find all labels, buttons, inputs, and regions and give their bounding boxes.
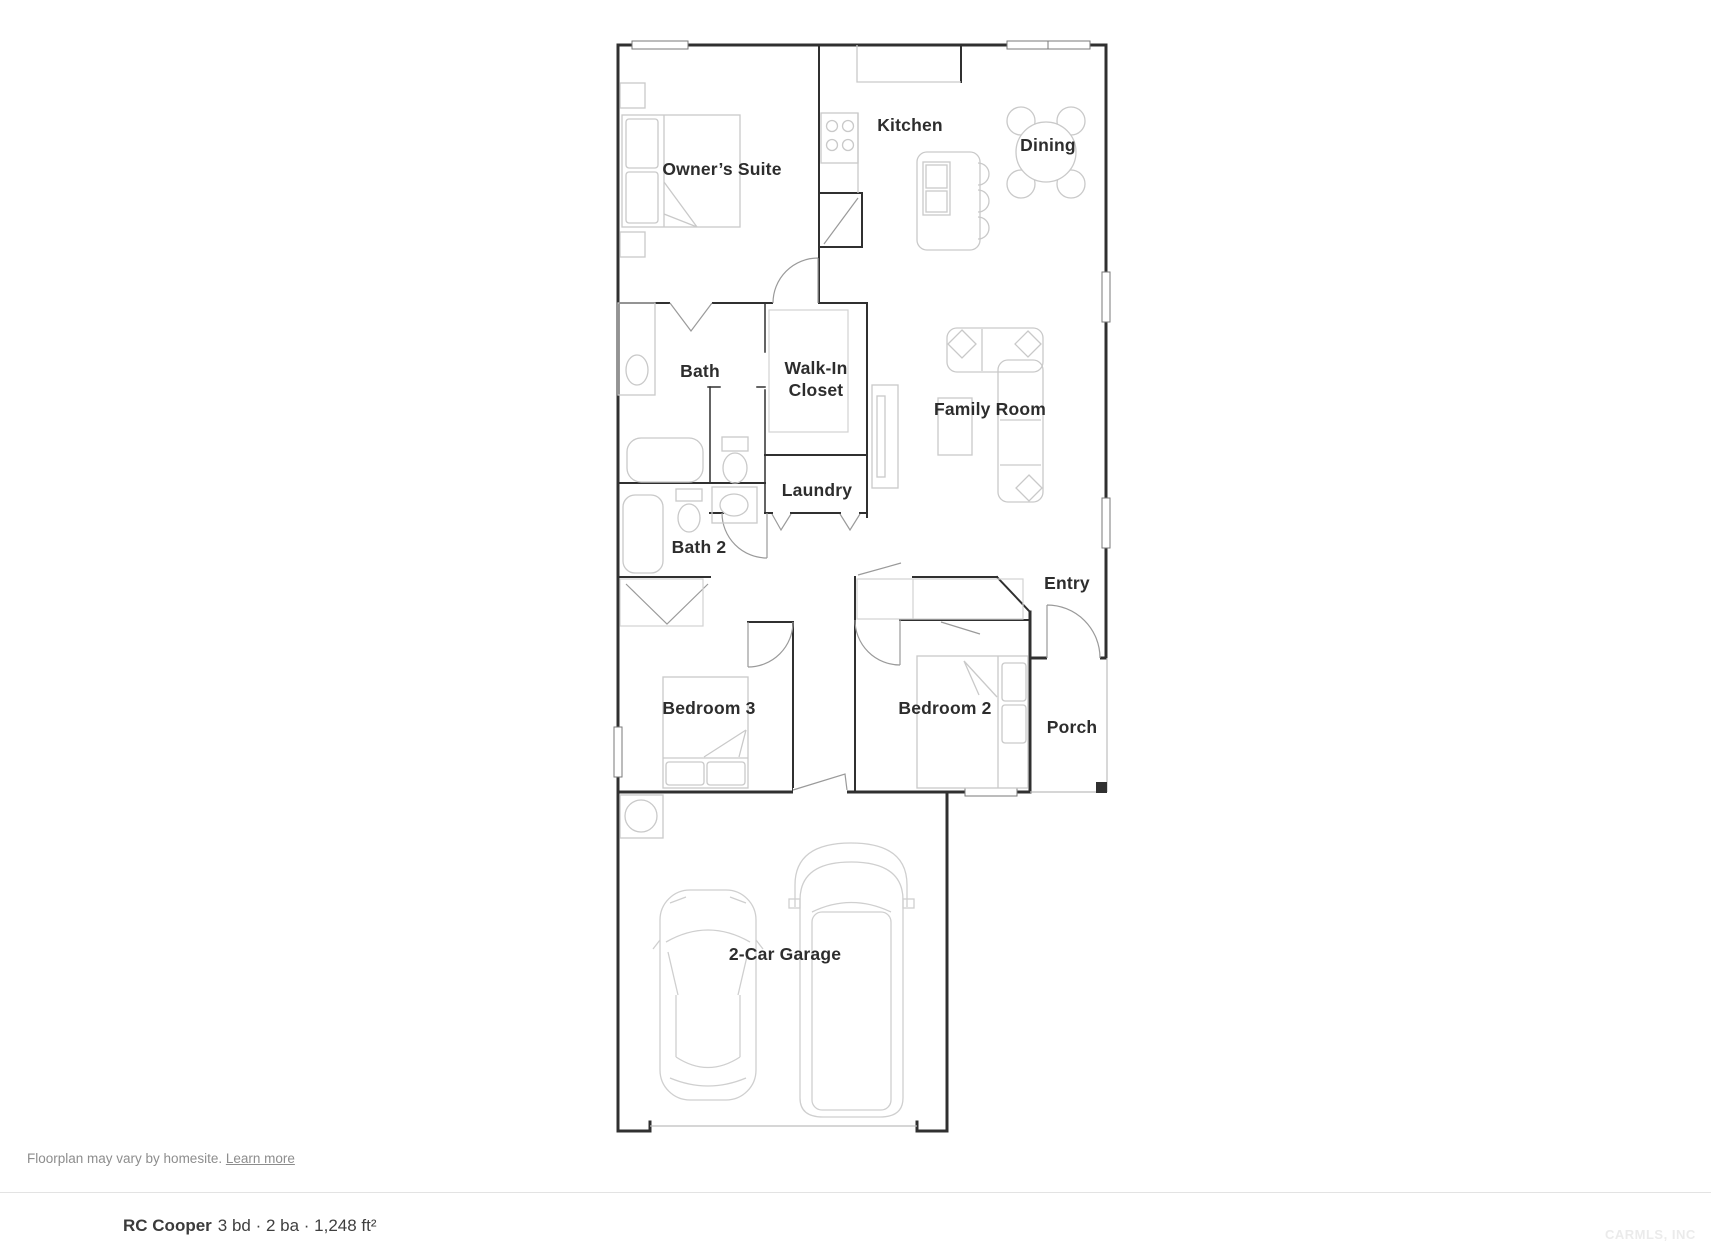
wall-openings bbox=[670, 300, 1100, 796]
room-label-kitchen: Kitchen bbox=[877, 115, 943, 137]
mls-watermark: CARMLS, INC bbox=[1605, 1227, 1696, 1242]
floorplan-page: Owner’s Suite Kitchen Dining Bath Walk-I… bbox=[0, 0, 1711, 1248]
floorplan-disclaimer: Floorplan may vary by homesite. Learn mo… bbox=[27, 1151, 295, 1166]
room-label-owners-suite: Owner’s Suite bbox=[662, 159, 781, 181]
bath2-fixtures-icon bbox=[623, 487, 757, 573]
room-label-bath-2: Bath 2 bbox=[672, 537, 727, 559]
room-label-porch: Porch bbox=[1047, 717, 1098, 739]
plan-name: RC Cooper bbox=[123, 1216, 212, 1235]
room-label-bedroom-2: Bedroom 2 bbox=[898, 698, 991, 720]
room-label-garage: 2-Car Garage bbox=[729, 944, 841, 966]
bedroom2-bed-icon bbox=[917, 656, 1028, 788]
room-label-bedroom-3: Bedroom 3 bbox=[662, 698, 755, 720]
room-label-dining: Dining bbox=[1020, 135, 1076, 157]
kitchen-fixtures-icon bbox=[821, 45, 989, 250]
truck-car-icon bbox=[789, 843, 914, 1117]
bedroom3-bed-icon bbox=[663, 677, 748, 788]
room-label-bath: Bath bbox=[680, 361, 720, 383]
room-label-walk-in-closet: Walk-In Closet bbox=[773, 358, 859, 402]
porch-post bbox=[1096, 782, 1107, 793]
footer-divider bbox=[0, 1192, 1711, 1193]
room-label-family-room: Family Room bbox=[934, 399, 1046, 421]
room-label-entry: Entry bbox=[1044, 573, 1090, 595]
tv-console-icon bbox=[872, 385, 898, 488]
learn-more-link[interactable]: Learn more bbox=[226, 1151, 295, 1166]
plan-summary: RC Cooper3 bd · 2 ba · 1,248 ft² bbox=[123, 1216, 377, 1236]
floorplan-drawing bbox=[0, 0, 1711, 1248]
plan-stats: 3 bd · 2 ba · 1,248 ft² bbox=[218, 1216, 377, 1235]
sedan-car-icon bbox=[653, 890, 763, 1100]
room-label-laundry: Laundry bbox=[782, 480, 852, 502]
disclaimer-text: Floorplan may vary by homesite. bbox=[27, 1151, 222, 1166]
water-heater-icon bbox=[620, 795, 663, 838]
owner-bath-fixtures-icon bbox=[618, 303, 748, 483]
